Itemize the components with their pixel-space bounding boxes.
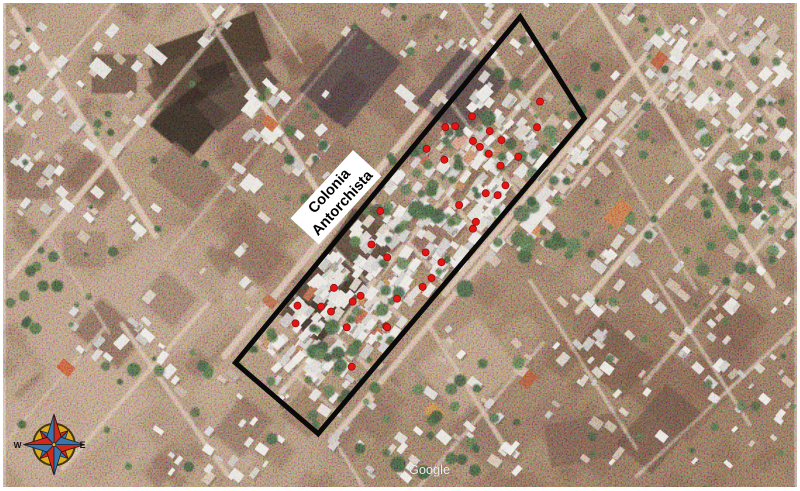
svg-text:E: E [80, 440, 86, 450]
svg-text:W: W [14, 440, 22, 450]
svg-text:Google: Google [409, 462, 450, 477]
